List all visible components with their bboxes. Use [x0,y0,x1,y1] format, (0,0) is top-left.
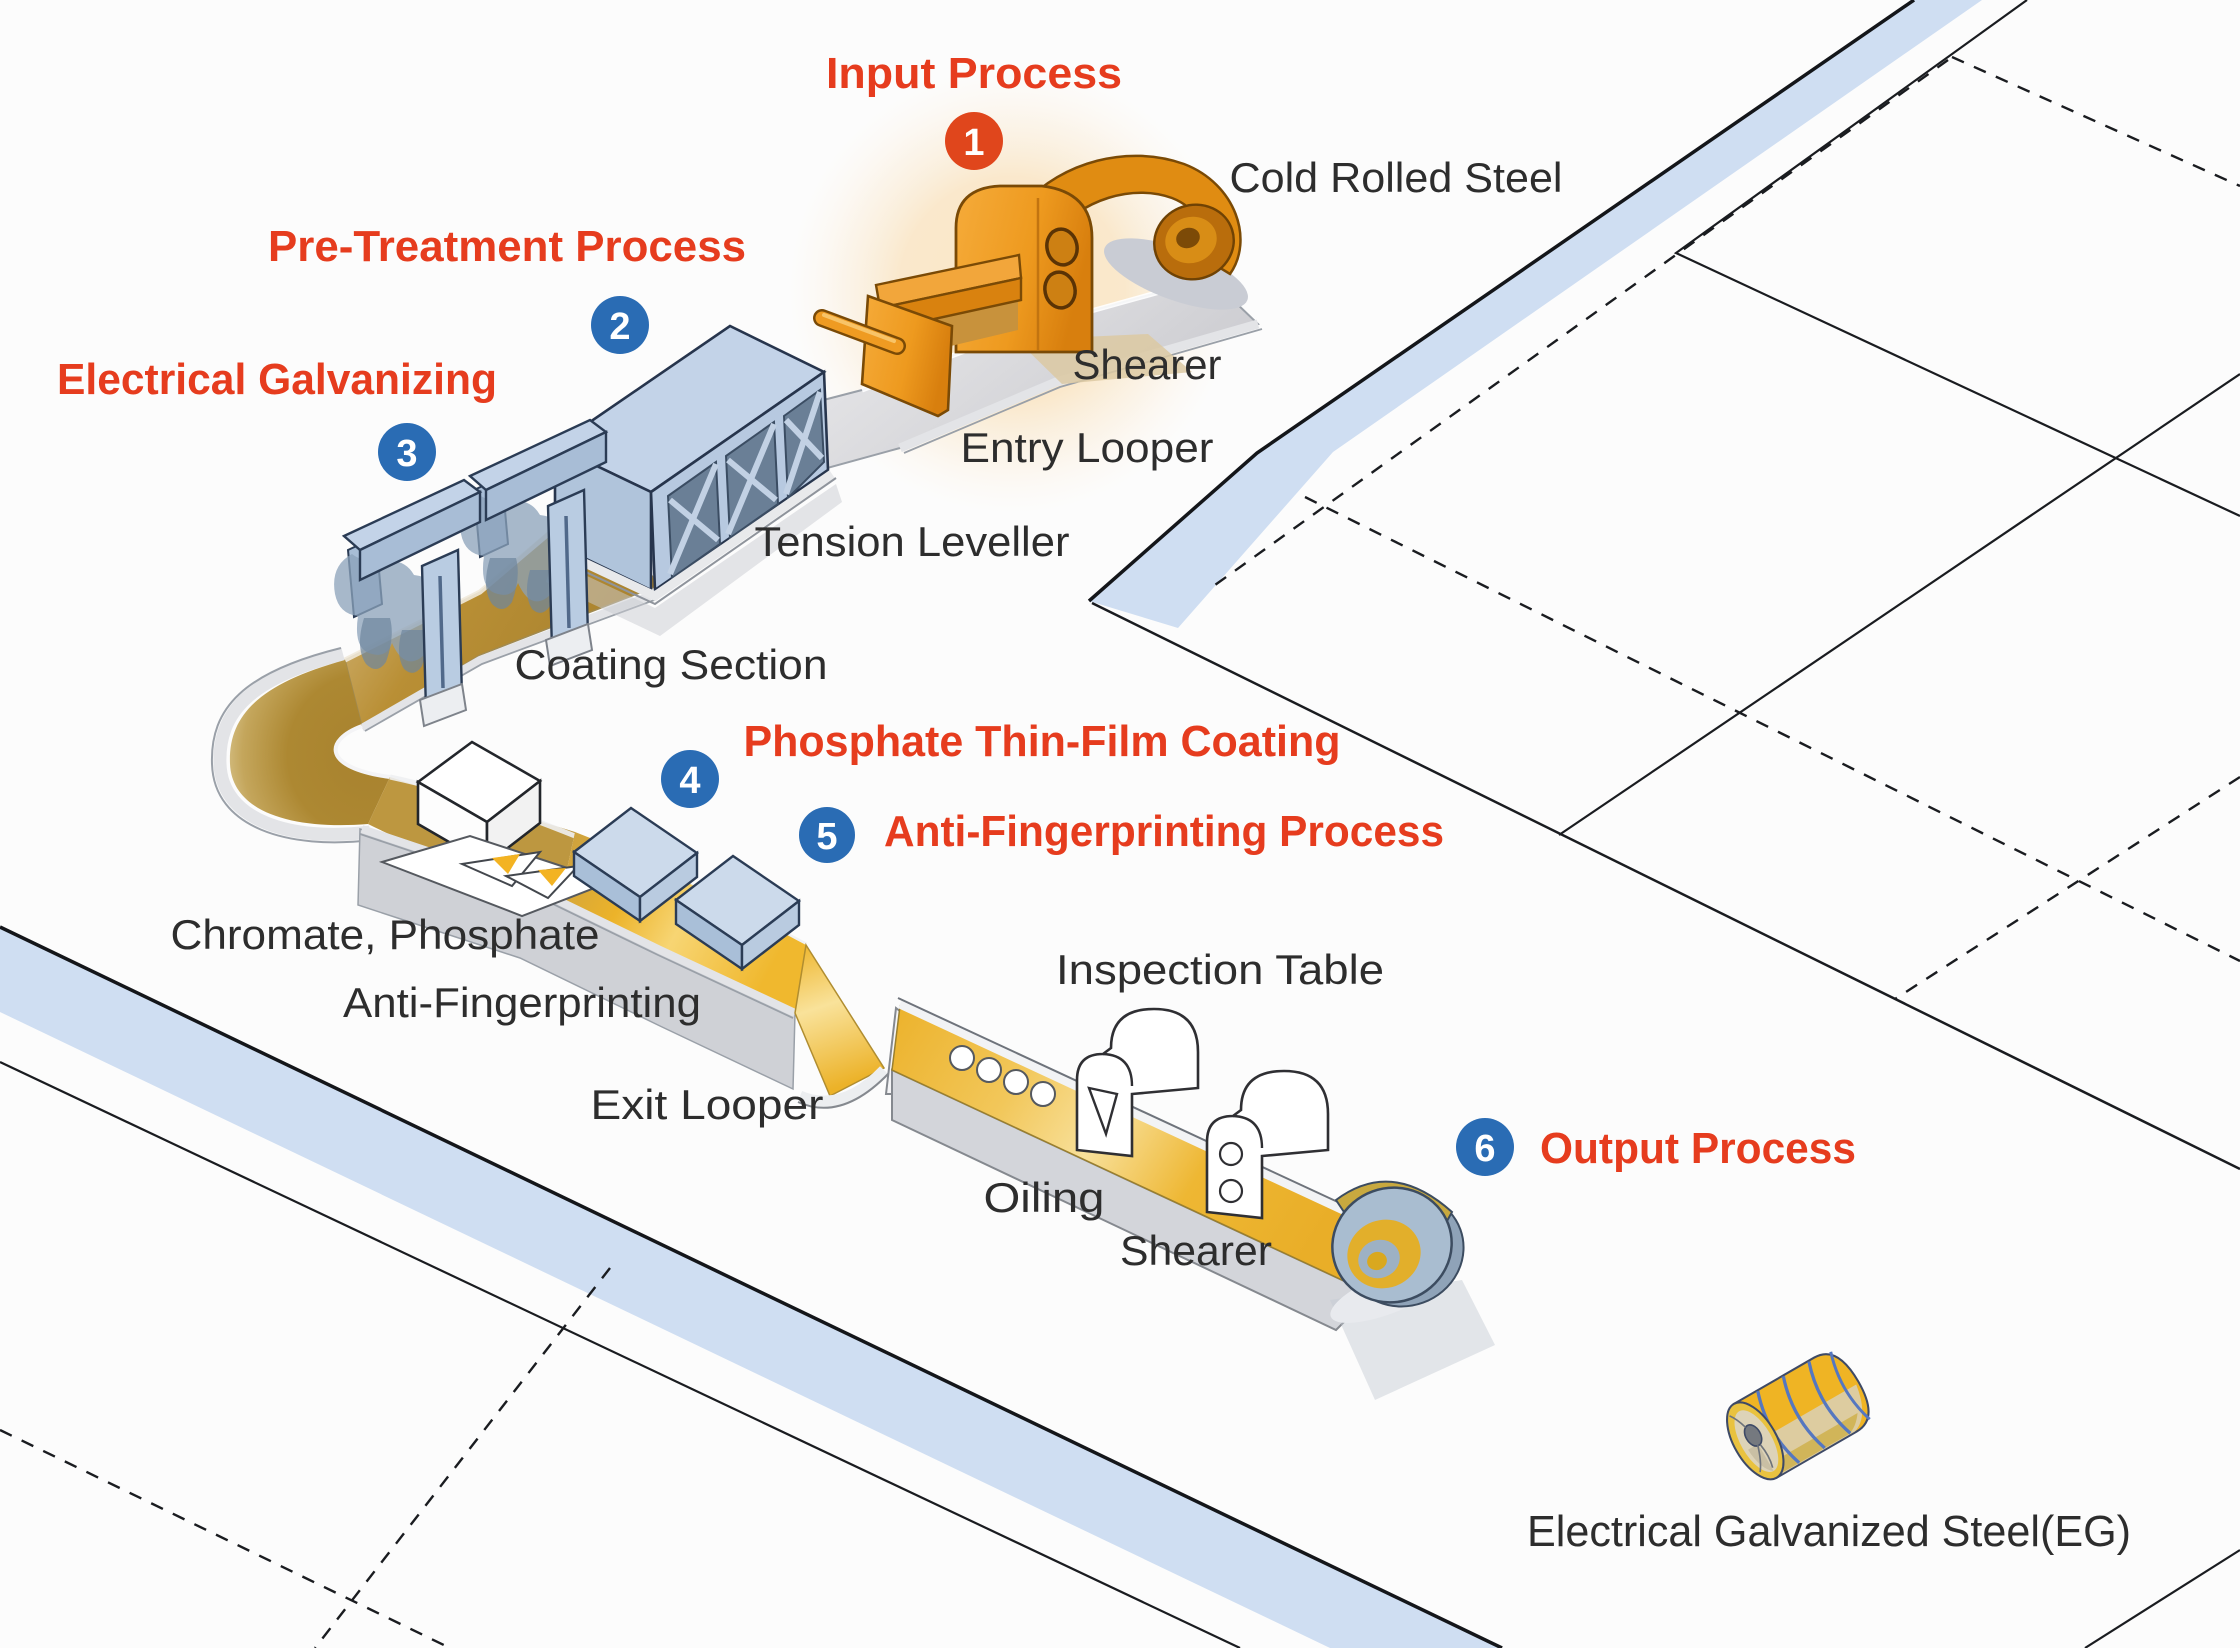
svg-text:Tension Leveller: Tension Leveller [755,518,1070,565]
svg-text:Inspection Table: Inspection Table [1056,946,1384,993]
svg-text:Output Process: Output Process [1540,1124,1856,1173]
svg-text:Phosphate Thin-Film Coating: Phosphate Thin-Film Coating [744,717,1341,766]
svg-text:Electrical Galvanized Steel(EG: Electrical Galvanized Steel(EG) [1527,1507,2131,1556]
svg-text:Pre-Treatment Process: Pre-Treatment Process [268,222,746,271]
svg-text:Coating Section: Coating Section [515,641,828,688]
svg-text:Chromate, Phosphate: Chromate, Phosphate [171,911,600,958]
svg-text:Input Process: Input Process [826,49,1122,98]
svg-text:Shearer: Shearer [1120,1227,1272,1274]
svg-text:Entry Looper: Entry Looper [961,424,1214,471]
svg-text:4: 4 [679,760,700,802]
svg-text:Exit Looper: Exit Looper [591,1081,824,1128]
svg-text:5: 5 [816,816,837,858]
svg-text:6: 6 [1474,1128,1495,1170]
svg-text:Anti-Fingerprinting Process: Anti-Fingerprinting Process [884,807,1444,856]
svg-text:2: 2 [609,306,630,348]
svg-text:Oiling: Oiling [984,1174,1105,1221]
svg-text:Electrical Galvanizing: Electrical Galvanizing [57,355,497,404]
svg-text:3: 3 [396,433,417,475]
svg-text:Cold Rolled Steel: Cold Rolled Steel [1230,154,1563,201]
svg-text:Shearer: Shearer [1073,341,1222,388]
svg-text:Anti-Fingerprinting: Anti-Fingerprinting [343,979,701,1026]
svg-text:1: 1 [963,122,984,164]
